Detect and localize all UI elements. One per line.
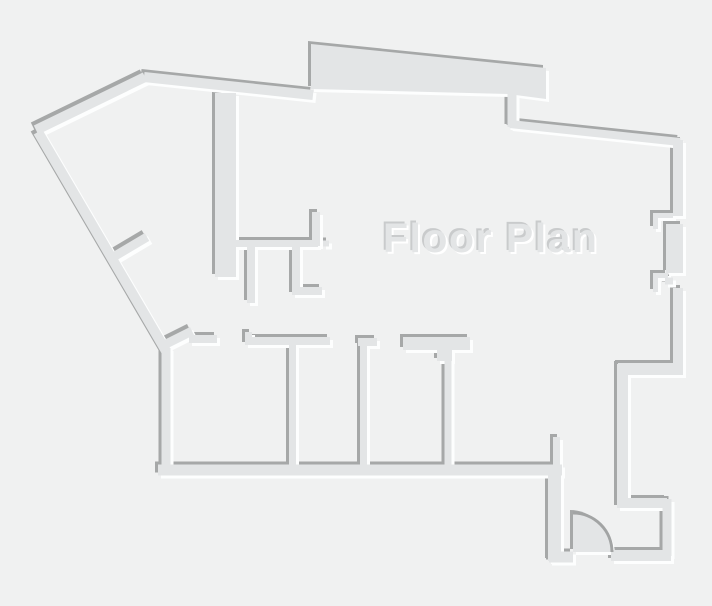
outer-wall-nw-diagonal [36, 77, 145, 130]
floor-plan-drawing [0, 0, 712, 606]
floor-plan-stage: Floor Plan [0, 0, 712, 606]
wall-layer-shadow [33, 41, 680, 558]
floor-plan-title: Floor Plan [383, 215, 593, 262]
wall-layer-fill [36, 44, 683, 561]
